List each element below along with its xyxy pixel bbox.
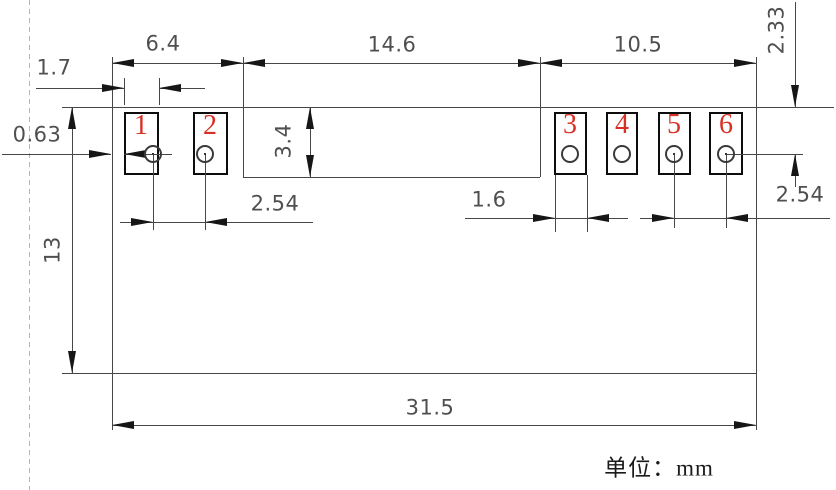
dim-arrow xyxy=(131,218,153,226)
extension-line xyxy=(124,78,125,105)
extension-line xyxy=(555,175,556,232)
dim-arrow xyxy=(221,59,243,67)
dim-arrow xyxy=(306,107,314,129)
middle-section-left-edge xyxy=(243,57,244,177)
dim-label-pad3-width: 1.6 xyxy=(472,190,507,211)
dim-label-pads12-pitch: 2.54 xyxy=(251,194,300,215)
dim-line-overall-width xyxy=(112,425,756,426)
dim-arrow xyxy=(587,214,609,222)
dim-label-edge-to-pad1: 0.63 xyxy=(13,125,62,146)
dim-arrow xyxy=(791,85,799,107)
dim-arrow xyxy=(791,154,799,176)
dim-arrow xyxy=(533,214,555,222)
dim-label-body-height: 13 xyxy=(43,236,64,264)
dim-arrow xyxy=(68,107,76,129)
dim-line-body-height xyxy=(72,107,73,373)
dim-arrow xyxy=(726,214,748,222)
unit-note: 单位：mm xyxy=(604,457,714,480)
left-dashed-centerline xyxy=(29,0,30,490)
middle-section-right-edge xyxy=(540,57,541,177)
pad-3-hole xyxy=(561,145,579,163)
pad-6-number: 6 xyxy=(719,111,733,139)
pad-4-number: 4 xyxy=(615,111,629,139)
technical-drawing: 1 2 3 4 5 6 6.4 14.6 10.5 1.7 0.63 2.33 … xyxy=(0,0,836,490)
dim-label-overall-width: 31.5 xyxy=(406,398,455,419)
extension-line xyxy=(587,175,588,232)
body-left-edge xyxy=(112,57,113,430)
extension-line xyxy=(153,154,154,230)
dim-label-top-to-hole: 2.33 xyxy=(767,6,788,55)
pad-2-number: 2 xyxy=(203,112,217,140)
dim-label-pads56-pitch: 2.54 xyxy=(776,185,825,206)
dim-arrow xyxy=(540,59,562,67)
extension-line xyxy=(674,154,675,228)
hole-center-mark xyxy=(204,153,206,155)
dim-arrow xyxy=(112,59,134,67)
hole-center-mark xyxy=(725,153,727,155)
dim-arrow xyxy=(734,421,756,429)
body-bottom-edge xyxy=(62,373,756,374)
middle-section-bottom-edge xyxy=(243,177,540,178)
dim-arrow xyxy=(68,351,76,373)
dim-arrow xyxy=(734,59,756,67)
dim-arrow xyxy=(102,84,124,92)
dim-label-middle-height: 3.4 xyxy=(274,124,295,159)
body-top-edge xyxy=(62,107,834,108)
body-right-edge xyxy=(756,57,757,430)
pad-5-number: 5 xyxy=(667,111,681,139)
dim-arrow xyxy=(124,150,146,158)
dim-label-pad1-width: 1.7 xyxy=(37,58,72,79)
pad-3-number: 3 xyxy=(563,111,577,139)
dim-label-middle-span: 14.6 xyxy=(368,35,417,56)
dim-arrow xyxy=(205,218,227,226)
dim-arrow xyxy=(652,214,674,222)
dim-label-pads12-span: 6.4 xyxy=(146,34,181,55)
leader-line-hole6 xyxy=(726,154,803,155)
dim-line-top-row xyxy=(112,63,756,64)
hole-center-mark xyxy=(673,153,675,155)
dim-arrow xyxy=(518,59,540,67)
dim-arrow xyxy=(306,155,314,177)
dim-arrow xyxy=(89,150,111,158)
pad-4-hole xyxy=(613,145,631,163)
dim-arrow xyxy=(112,421,134,429)
hole-center-mark xyxy=(152,153,154,155)
dim-label-pads36-span: 10.5 xyxy=(614,35,663,56)
dim-arrow xyxy=(159,84,181,92)
pad-1-number: 1 xyxy=(134,112,148,140)
dim-arrow xyxy=(243,59,265,67)
